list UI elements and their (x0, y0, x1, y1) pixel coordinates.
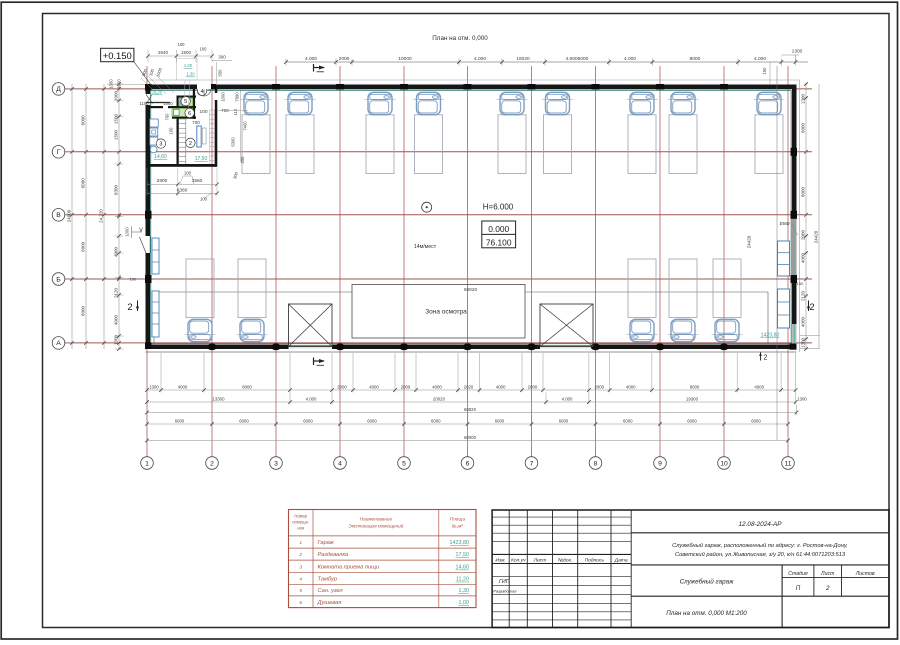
svg-text:2000: 2000 (337, 384, 347, 389)
svg-text:Разработал: Разработал (493, 589, 517, 594)
svg-text:2: 2 (189, 141, 192, 147)
svg-text:Зона осмотра: Зона осмотра (425, 309, 467, 316)
svg-text:помеще-: помеще- (292, 520, 310, 525)
svg-text:8000: 8000 (690, 384, 700, 389)
svg-text:Подпись: Подпись (585, 558, 605, 564)
svg-text:2800: 2800 (157, 178, 168, 184)
svg-text:300: 300 (218, 55, 226, 60)
svg-text:4: 4 (299, 577, 302, 583)
svg-text:500: 500 (218, 69, 223, 77)
svg-text:6000: 6000 (81, 241, 86, 252)
svg-text:7: 7 (530, 460, 534, 467)
svg-text:Гараж: Гараж (318, 540, 335, 546)
svg-text:60820: 60820 (464, 407, 477, 412)
svg-text:10000: 10000 (398, 56, 412, 62)
svg-text:А: А (56, 340, 61, 347)
svg-text:2000: 2000 (801, 229, 806, 240)
svg-text:6000: 6000 (687, 418, 697, 423)
svg-text:6000: 6000 (623, 418, 633, 423)
svg-text:5: 5 (299, 588, 302, 594)
svg-text:2020: 2020 (464, 384, 474, 389)
svg-text:60000: 60000 (464, 435, 477, 440)
svg-text:100: 100 (199, 109, 207, 115)
svg-text:100: 100 (200, 46, 208, 51)
svg-text:Тамбур: Тамбур (318, 577, 338, 583)
svg-text:6000: 6000 (175, 418, 185, 423)
svg-text:24420: 24420 (747, 235, 752, 248)
svg-text:1423,80: 1423,80 (450, 540, 470, 546)
svg-text:4000: 4000 (114, 314, 119, 325)
svg-text:Изм.: Изм. (495, 558, 505, 564)
svg-text:1,30: 1,30 (459, 588, 470, 594)
svg-text:Б: Б (56, 276, 61, 283)
svg-text:150: 150 (762, 67, 767, 75)
svg-text:EI60: EI60 (780, 221, 790, 227)
svg-text:4000: 4000 (496, 384, 506, 389)
svg-text:Площа: Площа (450, 517, 466, 522)
svg-text:ГИП: ГИП (499, 579, 510, 585)
svg-text:6: 6 (466, 460, 470, 467)
svg-text:1,00: 1,00 (459, 600, 470, 606)
svg-text:3: 3 (274, 460, 278, 467)
svg-text:1000: 1000 (114, 90, 119, 101)
svg-text:Дата: Дата (614, 558, 628, 564)
svg-text:110: 110 (233, 108, 238, 115)
svg-text:Сан. узел: Сан. узел (318, 588, 344, 594)
svg-text:1100: 1100 (139, 101, 149, 106)
svg-text:3: 3 (299, 564, 302, 570)
svg-text:100: 100 (169, 127, 174, 135)
svg-text:6000: 6000 (367, 418, 377, 423)
svg-text:4000: 4000 (432, 384, 442, 389)
svg-text:150: 150 (797, 281, 804, 286)
svg-text:1500: 1500 (114, 129, 119, 140)
svg-text:2000: 2000 (401, 384, 411, 389)
svg-text:200: 200 (240, 156, 245, 164)
svg-text:1000: 1000 (125, 227, 130, 237)
svg-text:24420: 24420 (814, 230, 819, 243)
svg-text:4.000: 4.000 (474, 56, 486, 62)
svg-text:4.0006000: 4.0006000 (566, 56, 589, 62)
svg-text:4000: 4000 (801, 316, 806, 327)
svg-text:Д: Д (56, 86, 61, 93)
svg-text:1: 1 (299, 540, 302, 546)
svg-text:4000: 4000 (114, 246, 119, 257)
svg-text:6000: 6000 (801, 122, 806, 133)
svg-text:6000: 6000 (303, 418, 313, 423)
svg-text:1000: 1000 (109, 79, 114, 89)
svg-text:17,50: 17,50 (456, 552, 470, 558)
svg-text:1,30: 1,30 (186, 72, 195, 77)
svg-text:6000: 6000 (81, 305, 86, 316)
svg-text:16020: 16020 (516, 56, 530, 62)
svg-text:8300: 8300 (114, 184, 119, 195)
svg-text:Служебный гараж: Служебный гараж (680, 578, 735, 586)
svg-text:Г: Г (57, 149, 61, 156)
svg-text:6000: 6000 (81, 178, 86, 189)
svg-text:1,00: 1,00 (184, 63, 193, 68)
svg-text:6000: 6000 (81, 115, 86, 126)
svg-text:2: 2 (210, 460, 214, 467)
svg-text:76.100: 76.100 (486, 238, 512, 248)
svg-text:5300: 5300 (231, 137, 236, 147)
svg-text:Экспликация помещений: Экспликация помещений (348, 523, 403, 529)
svg-text:11,20: 11,20 (152, 90, 163, 95)
svg-text:2: 2 (825, 585, 830, 592)
svg-text:4.000: 4.000 (754, 56, 766, 62)
svg-text:1300: 1300 (792, 49, 803, 55)
svg-text:10: 10 (720, 460, 728, 467)
svg-text:700: 700 (192, 120, 200, 125)
svg-text:Кол.уч: Кол.уч (511, 558, 526, 564)
svg-text:4000: 4000 (369, 384, 379, 389)
svg-text:1000: 1000 (117, 79, 122, 89)
svg-text:14м/мест: 14м/мест (414, 244, 437, 250)
svg-text:4.000: 4.000 (624, 56, 636, 62)
svg-text:1000: 1000 (163, 101, 173, 106)
svg-text:9: 9 (658, 460, 662, 467)
svg-text:+0.150: +0.150 (103, 50, 132, 61)
svg-text:дь,м²: дь,м² (452, 524, 464, 529)
svg-text:5: 5 (184, 99, 187, 105)
svg-text:4.000: 4.000 (306, 396, 317, 401)
svg-text:План на отм. 0,000 М1:200: План на отм. 0,000 М1:200 (666, 610, 747, 617)
svg-text:8000: 8000 (242, 384, 252, 389)
svg-text:H=6.000: H=6.000 (483, 203, 514, 212)
svg-text:Лист: Лист (820, 571, 835, 577)
svg-text:ния: ния (297, 526, 305, 531)
svg-text:8000: 8000 (801, 186, 806, 197)
svg-text:Наименование: Наименование (360, 517, 393, 522)
svg-text:11,20: 11,20 (456, 577, 469, 583)
svg-text:0.000: 0.000 (488, 224, 509, 234)
svg-text:2000: 2000 (528, 384, 538, 389)
svg-text:2640: 2640 (158, 50, 169, 55)
svg-text:Раздевалка: Раздевалка (318, 552, 349, 558)
svg-text:1500: 1500 (114, 113, 119, 124)
svg-text:5: 5 (402, 460, 406, 467)
svg-text:2: 2 (298, 552, 302, 558)
svg-text:1300: 1300 (797, 396, 807, 401)
svg-text:60820: 60820 (464, 287, 478, 293)
svg-text:24000: 24000 (67, 209, 72, 222)
svg-text:План на отм. 0,000: План на отм. 0,000 (432, 35, 488, 42)
svg-text:7400: 7400 (243, 121, 248, 131)
svg-text:В: В (56, 212, 61, 219)
svg-text:1000: 1000 (221, 92, 226, 102)
svg-text:4000: 4000 (754, 384, 764, 389)
svg-text:Номер: Номер (294, 514, 308, 519)
svg-text:6000: 6000 (495, 418, 505, 423)
svg-text:Советский район, ул.Живописная: Советский район, ул.Живописная, з/у 20, … (675, 551, 846, 558)
svg-text:2000: 2000 (339, 56, 350, 62)
svg-text:1500: 1500 (181, 50, 192, 55)
svg-text:2000: 2000 (595, 384, 605, 389)
svg-text:12.08-2024-АР: 12.08-2024-АР (739, 521, 783, 528)
svg-text:Листов: Листов (855, 571, 875, 577)
svg-text:700: 700 (165, 113, 170, 121)
svg-text:14,60: 14,60 (456, 564, 470, 570)
svg-text:150: 150 (130, 277, 137, 282)
svg-text:4.000: 4.000 (305, 56, 317, 62)
svg-text:Душевая: Душевая (317, 600, 342, 606)
svg-text:8: 8 (594, 460, 598, 467)
svg-text:11: 11 (784, 460, 791, 467)
svg-text:100: 100 (178, 42, 186, 47)
svg-text:П: П (796, 585, 801, 592)
svg-text:Стадия: Стадия (788, 571, 808, 577)
svg-text:6000: 6000 (239, 418, 249, 423)
svg-text:3: 3 (159, 142, 162, 148)
svg-text:100: 100 (200, 197, 208, 202)
svg-text:4: 4 (200, 89, 203, 95)
svg-text:6: 6 (188, 111, 191, 117)
svg-text:6000: 6000 (751, 418, 761, 423)
svg-text:№док.: №док. (558, 558, 572, 564)
svg-text:6: 6 (299, 600, 302, 606)
svg-text:4.000: 4.000 (562, 396, 573, 401)
svg-text:13300: 13300 (213, 396, 226, 401)
svg-text:8000: 8000 (690, 56, 701, 62)
svg-text:Служебный гараж, расположенны: Служебный гараж, расположенный по адресу… (672, 542, 848, 549)
svg-text:6000: 6000 (559, 418, 569, 423)
svg-text:4000: 4000 (626, 384, 636, 389)
svg-text:1: 1 (145, 460, 149, 467)
svg-text:4: 4 (338, 460, 342, 467)
svg-text:2: 2 (809, 302, 814, 313)
svg-text:2: 2 (127, 302, 132, 313)
svg-text:24.720: 24.720 (99, 209, 104, 223)
svg-text:100: 100 (184, 171, 192, 176)
svg-text:Лист: Лист (533, 558, 547, 564)
svg-text:7990: 7990 (235, 92, 240, 102)
svg-text:20020: 20020 (433, 396, 446, 401)
svg-text:19300: 19300 (686, 396, 699, 401)
svg-text:2: 2 (764, 355, 768, 362)
svg-text:1300: 1300 (149, 384, 159, 389)
svg-text:Комната приема пищи: Комната приема пищи (318, 564, 380, 570)
svg-text:6000: 6000 (431, 418, 441, 423)
svg-text:4000: 4000 (178, 384, 188, 389)
